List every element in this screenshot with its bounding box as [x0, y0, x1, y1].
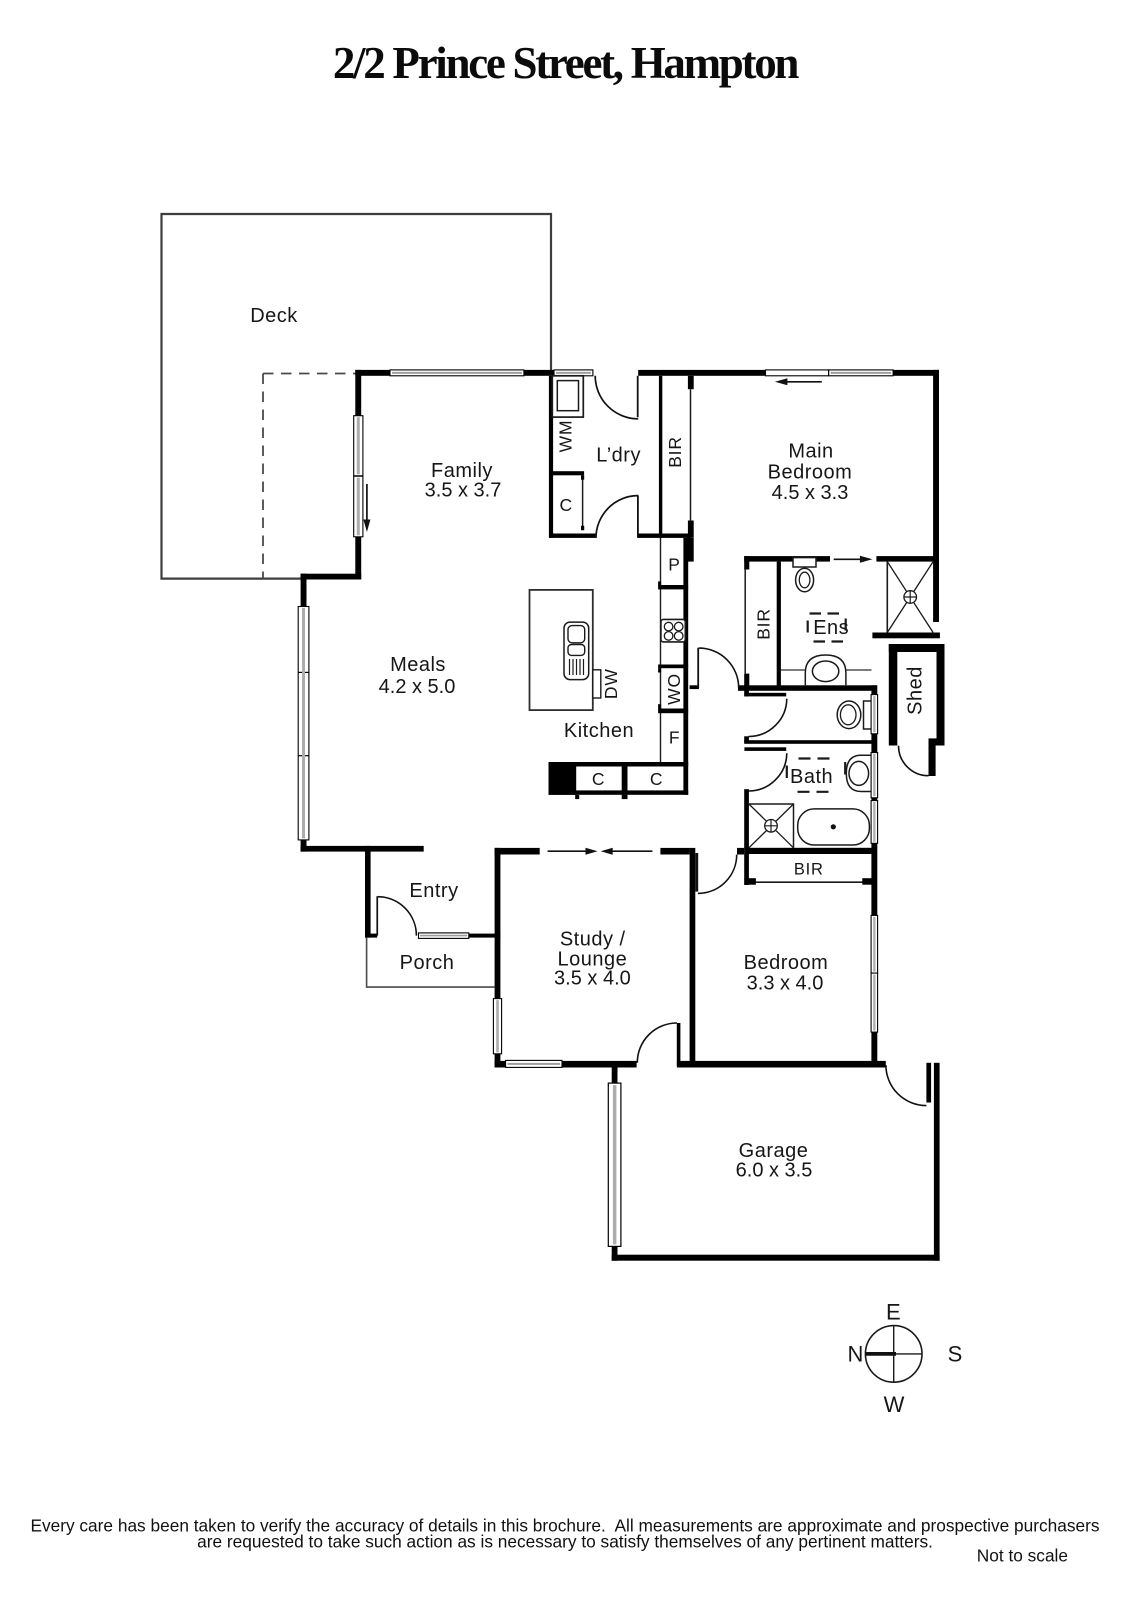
svg-text:Porch: Porch — [400, 952, 455, 974]
svg-text:W: W — [884, 1392, 905, 1417]
svg-text:F: F — [669, 728, 681, 748]
svg-text:BIR: BIR — [754, 608, 774, 640]
svg-text:Deck: Deck — [250, 305, 298, 327]
svg-text:Entry: Entry — [409, 880, 458, 902]
svg-text:C: C — [650, 769, 663, 789]
svg-text:are requested to take such act: are requested to take such action as is … — [197, 1532, 933, 1552]
svg-text:Kitchen: Kitchen — [564, 720, 634, 742]
svg-text:Shed: Shed — [905, 666, 927, 715]
svg-text:P: P — [668, 555, 680, 575]
svg-text:N: N — [848, 1342, 864, 1367]
svg-text:3.5 x 4.0: 3.5 x 4.0 — [554, 968, 631, 990]
svg-text:4.2 x 5.0: 4.2 x 5.0 — [379, 676, 456, 698]
svg-text:Not to scale: Not to scale — [977, 1546, 1068, 1566]
svg-text:Bedroom: Bedroom — [744, 952, 829, 974]
svg-text:Meals: Meals — [390, 654, 446, 676]
svg-text:DW: DW — [601, 668, 621, 699]
svg-text:WO: WO — [664, 673, 684, 705]
svg-text:BIR: BIR — [794, 861, 824, 879]
svg-text:Main: Main — [788, 441, 833, 463]
svg-text:3.5 x 3.7: 3.5 x 3.7 — [425, 480, 502, 502]
svg-text:6.0 x 3.5: 6.0 x 3.5 — [736, 1160, 813, 1182]
svg-text:BIR: BIR — [665, 436, 685, 468]
svg-text:Ens: Ens — [813, 617, 849, 639]
svg-text:C: C — [559, 495, 572, 515]
svg-text:WM: WM — [556, 420, 576, 453]
svg-text:3.3 x 4.0: 3.3 x 4.0 — [747, 973, 824, 995]
svg-text:Bedroom: Bedroom — [768, 462, 853, 484]
svg-text:L’dry: L’dry — [596, 445, 641, 467]
svg-text:E: E — [886, 1300, 901, 1325]
svg-text:Bath: Bath — [790, 766, 833, 788]
svg-text:Study /: Study / — [560, 929, 626, 951]
svg-text:S: S — [948, 1342, 963, 1367]
svg-text:2/2 Prince Street, Hampton: 2/2 Prince Street, Hampton — [333, 38, 800, 88]
svg-text:4.5 x 3.3: 4.5 x 3.3 — [772, 482, 849, 504]
svg-text:C: C — [592, 769, 605, 789]
